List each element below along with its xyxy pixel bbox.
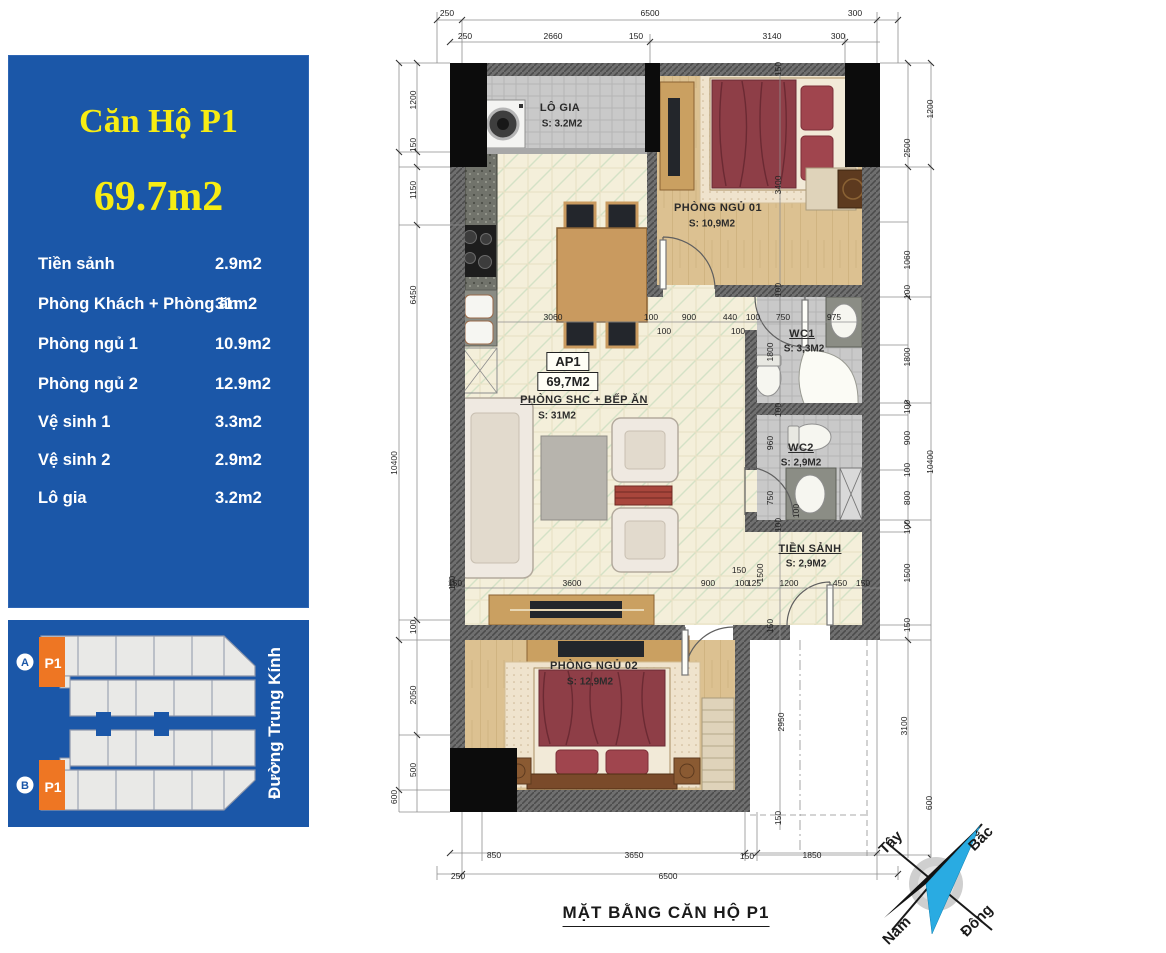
dim-left-inner: 6450 xyxy=(409,286,418,305)
compass: Bắc Tây Nam Đông xyxy=(872,812,1022,953)
room-name-living: PHÒNG SHC + BẾP ĂN xyxy=(520,394,648,406)
bedroom1-furniture xyxy=(660,73,868,210)
dim-hall-v: 150 xyxy=(766,619,775,633)
room-area-bedroom1: S: 10,9M2 xyxy=(689,219,735,230)
dim-top-outer: 300 xyxy=(848,9,862,18)
dim-top-outer: 250 xyxy=(440,9,454,18)
dim-bottom-inner: 850 xyxy=(487,851,501,860)
coffee-table-icon xyxy=(541,436,607,520)
wardrobe-icon xyxy=(702,698,734,792)
dim-right-inner: 100 xyxy=(903,520,912,534)
dim-right-inner: 3100 xyxy=(900,717,909,736)
dim-row-a: 750 xyxy=(776,313,790,322)
dim-right-inner: 1500 xyxy=(903,564,912,583)
dim-row-b: 150 xyxy=(448,579,462,588)
floor-plan-page: Căn Hộ P1 69.7m2 Tiền sảnh 2.9m2 Phòng K… xyxy=(0,0,1166,953)
room-area-logia: S: 3.2M2 xyxy=(542,119,583,130)
dim-left-inner: 2050 xyxy=(409,686,418,705)
dim-row-a: 440 xyxy=(723,313,737,322)
room-name-wc2: WC2 xyxy=(788,442,814,454)
dim-top-inner: 3140 xyxy=(763,32,782,41)
dim-bottom-inner: 3650 xyxy=(625,851,644,860)
dim-top-inner: 250 xyxy=(458,32,472,41)
dim-hall-v: 1500 xyxy=(756,564,765,583)
dining-table-icon xyxy=(557,228,647,322)
dim-bottom-inner: 1850 xyxy=(803,851,822,860)
dim-bottom-outer: 250 xyxy=(451,872,465,881)
dim-right-outer: 10400 xyxy=(926,450,935,474)
room-name-bedroom1: PHÒNG NGỦ 01 xyxy=(674,202,762,214)
dim-left-outer: 10400 xyxy=(390,451,399,475)
floor-plan-drawing xyxy=(0,0,1166,953)
dim-row-a: 100 xyxy=(644,313,658,322)
dim-row-b: 150 xyxy=(856,579,870,588)
dim-bed1-v: 150 xyxy=(774,62,783,76)
room-name-wc1: WC1 xyxy=(789,328,815,340)
dim-row-a: 100 xyxy=(746,313,760,322)
dim-top-inner: 2660 xyxy=(544,32,563,41)
dim-right-inner: 150 xyxy=(903,618,912,632)
dim-row-b: 3600 xyxy=(563,579,582,588)
dim-right-inner: 800 xyxy=(903,491,912,505)
compass-west: Tây xyxy=(876,827,907,858)
dim-left-inner: 150 xyxy=(409,138,418,152)
room-name-bedroom2: PHÒNG NGỦ 02 xyxy=(550,660,638,672)
dim-row-b: 450 xyxy=(833,579,847,588)
dim-left-inner: 1200 xyxy=(409,91,418,110)
dim-right-inner: 2500 xyxy=(903,139,912,158)
dim-wc-v: 100 xyxy=(792,504,801,518)
dim-right-inner: 100 xyxy=(903,285,912,299)
compass-south: Nam xyxy=(879,913,914,948)
dim-wc-v: 1800 xyxy=(766,343,775,362)
dim-right-inner: 100 xyxy=(903,400,912,414)
dim-right-outer: 600 xyxy=(925,796,934,810)
dim-bed1-v: 3400 xyxy=(774,176,783,195)
dim-row-b: 900 xyxy=(701,579,715,588)
unit-area-box: 69,7M2 xyxy=(537,372,598,391)
dim-row-a2: 100 xyxy=(731,327,745,336)
dim-row-a: 975 xyxy=(827,313,841,322)
dim-top-inner: 150 xyxy=(629,32,643,41)
dim-left-inner: 1150 xyxy=(409,181,418,199)
balcony-washer xyxy=(483,100,525,148)
dim-bottom-inner: 150 xyxy=(740,852,754,861)
dim-row-a: 900 xyxy=(682,313,696,322)
room-area-wc1: S: 3,3M2 xyxy=(784,344,825,355)
dim-left-outer: 600 xyxy=(390,790,399,804)
dim-top-outer: 6500 xyxy=(641,9,660,18)
dim-wc-v: 960 xyxy=(766,436,775,450)
dim-wc-v: 100 xyxy=(774,518,783,532)
dim-left-inner: 500 xyxy=(409,763,418,777)
room-name-tiensanh: TIỀN SẢNH xyxy=(779,543,842,555)
dim-bed2-v: 2950 xyxy=(777,713,786,732)
room-area-wc2: S: 2,9M2 xyxy=(781,458,822,469)
dim-row-b2: 150 xyxy=(732,566,746,575)
dim-bottom-outer: 6500 xyxy=(659,872,678,881)
room-area-bedroom2: S: 12,9M2 xyxy=(567,677,613,688)
dim-bed1-v: 100 xyxy=(774,283,783,297)
unit-code-box: AP1 xyxy=(546,352,589,371)
dim-bed2-v: 150 xyxy=(774,811,783,825)
dim-left-inner: 100 xyxy=(409,620,418,634)
dim-row-a: 3060 xyxy=(544,313,563,322)
dim-row-b: 1200 xyxy=(780,579,799,588)
dim-right-inner: 1060 xyxy=(903,251,912,270)
room-area-tiensanh: S: 2,9M2 xyxy=(786,559,827,570)
dim-right-outer: 1200 xyxy=(926,100,935,119)
dim-right-inner: 900 xyxy=(903,431,912,445)
plan-caption: MẶT BẰNG CĂN HỘ P1 xyxy=(563,903,770,927)
dim-wc-v: 750 xyxy=(766,491,775,505)
dim-top-inner: 300 xyxy=(831,32,845,41)
dim-wc-v: 100 xyxy=(774,403,783,417)
room-area-living: S: 31M2 xyxy=(538,411,576,422)
dim-right-inner: 100 xyxy=(903,463,912,477)
dim-right-inner: 1800 xyxy=(903,348,912,367)
dim-row-a2: 100 xyxy=(657,327,671,336)
room-name-logia: LÔ GIA xyxy=(540,102,580,114)
bench-icon xyxy=(615,486,672,505)
